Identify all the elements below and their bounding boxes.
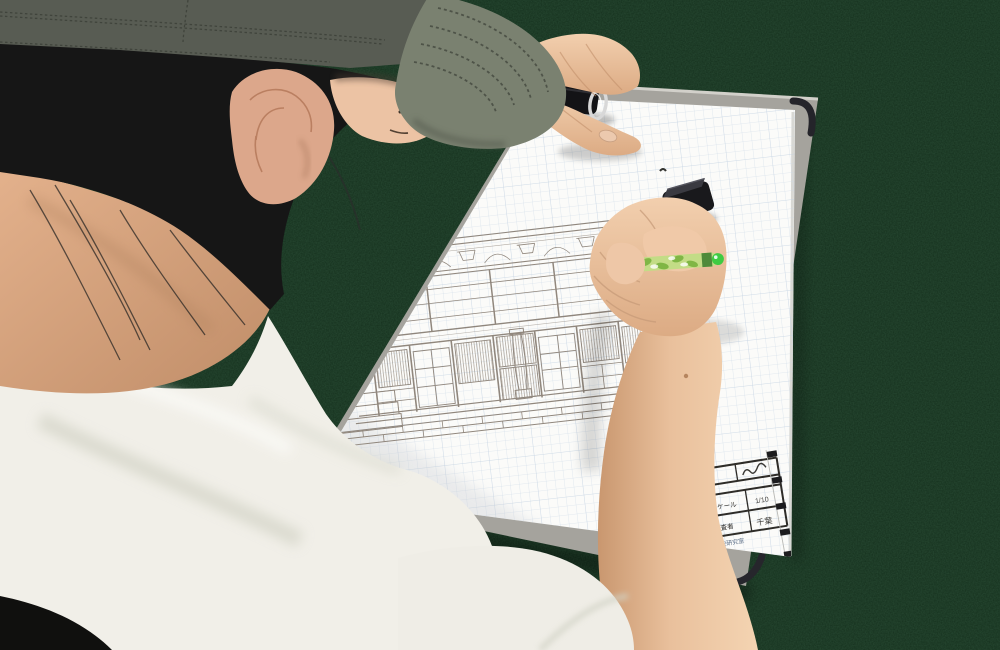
pen-grip-ring [701,253,712,268]
scene-photo: 立面図 スケール 1/10 月 15 日 調査者 千葉 千葉工業大学建築史研究室 [0,0,1000,650]
skin-mole [684,374,688,378]
photo-canvas: 立面図 スケール 1/10 月 15 日 調査者 千葉 千葉工業大学建築史研究室 [0,0,1000,650]
